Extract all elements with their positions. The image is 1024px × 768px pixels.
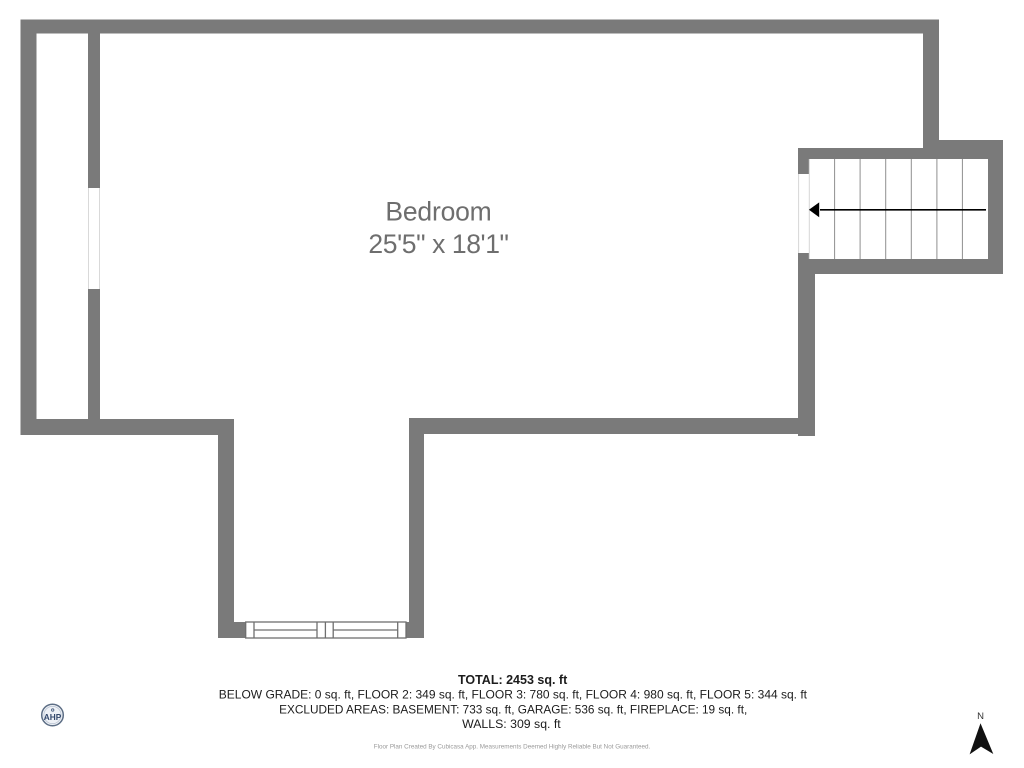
svg-text:N: N bbox=[977, 711, 984, 722]
svg-text:EXCLUDED AREAS: BASEMENT: 733: EXCLUDED AREAS: BASEMENT: 733 sq. ft, GA… bbox=[279, 702, 747, 716]
svg-text:AHP: AHP bbox=[44, 712, 62, 722]
svg-text:WALLS: 309 sq. ft: WALLS: 309 sq. ft bbox=[462, 717, 561, 731]
svg-text:TOTAL: 2453 sq. ft: TOTAL: 2453 sq. ft bbox=[458, 673, 568, 687]
svg-text:Floor Plan Created By Cubicasa: Floor Plan Created By Cubicasa App. Meas… bbox=[374, 744, 651, 751]
svg-text:25'5" x 18'1": 25'5" x 18'1" bbox=[368, 229, 508, 259]
svg-text:BELOW GRADE: 0 sq. ft, FLOOR 2: BELOW GRADE: 0 sq. ft, FLOOR 2: 349 sq. … bbox=[219, 688, 808, 702]
svg-text:Bedroom: Bedroom bbox=[385, 197, 491, 227]
